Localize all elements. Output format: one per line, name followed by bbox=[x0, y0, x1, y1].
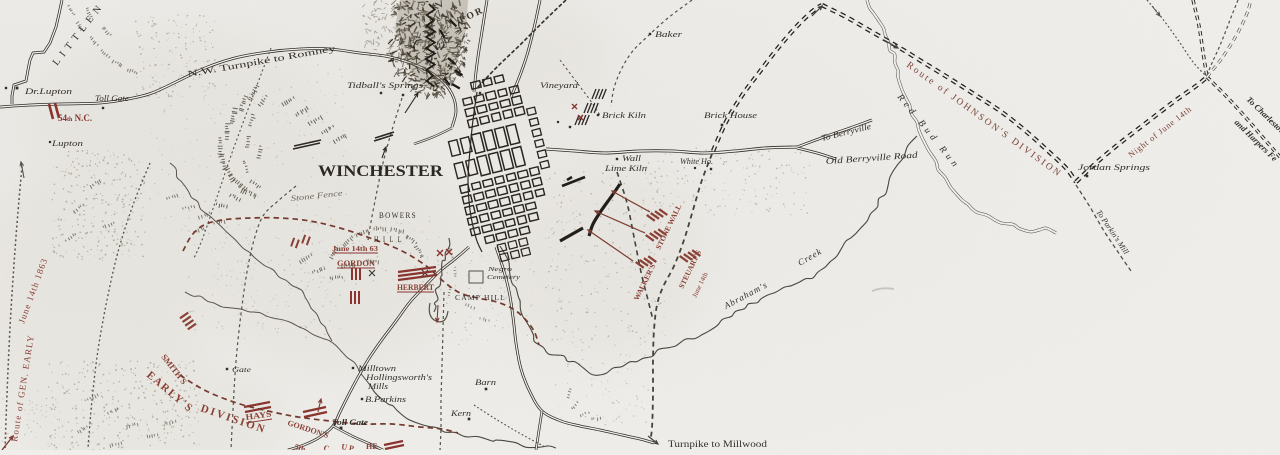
svg-text:54th N.C.: 54th N.C. bbox=[58, 113, 92, 123]
svg-text:Lime Kiln: Lime Kiln bbox=[604, 163, 647, 173]
svg-text:H I L L: H I L L bbox=[374, 235, 403, 244]
svg-text:Jordan Springs: Jordan Springs bbox=[1078, 162, 1151, 172]
svg-text:Baker: Baker bbox=[655, 29, 683, 39]
svg-text:Hollingsworth's: Hollingsworth's bbox=[365, 373, 432, 382]
svg-text:Negro: Negro bbox=[487, 266, 514, 273]
svg-text:Mills: Mills bbox=[367, 382, 388, 391]
svg-text:Lupton: Lupton bbox=[51, 138, 83, 148]
svg-text:HERBERT: HERBERT bbox=[397, 283, 435, 292]
svg-text:Milltown: Milltown bbox=[357, 364, 396, 373]
svg-text:Vineyard: Vineyard bbox=[540, 80, 579, 90]
svg-text:Barn: Barn bbox=[475, 378, 496, 387]
svg-text:Gate: Gate bbox=[232, 365, 252, 374]
svg-text:HE: HE bbox=[366, 442, 378, 450]
svg-text:White Ho.: White Ho. bbox=[680, 157, 713, 166]
svg-text:Kern: Kern bbox=[450, 409, 471, 418]
svg-text:Toll Gate: Toll Gate bbox=[95, 94, 130, 103]
svg-text:Brick House: Brick House bbox=[704, 110, 757, 120]
svg-text:Toll Gate: Toll Gate bbox=[332, 418, 369, 427]
svg-text:CAMP HILL: CAMP HILL bbox=[455, 293, 506, 302]
svg-text:WINCHESTER: WINCHESTER bbox=[318, 163, 444, 180]
svg-text:Turnpike to Millwood: Turnpike to Millwood bbox=[668, 439, 768, 449]
svg-text:Cemetery: Cemetery bbox=[487, 274, 520, 281]
svg-text:U P: U P bbox=[341, 442, 355, 450]
svg-text:Dr.Lupton: Dr.Lupton bbox=[24, 86, 72, 96]
svg-text:BOWERS: BOWERS bbox=[379, 211, 417, 220]
svg-text:Wall: Wall bbox=[622, 154, 642, 163]
svg-text:Brick Kiln: Brick Kiln bbox=[602, 110, 646, 120]
svg-text:Tidball's Springs: Tidball's Springs bbox=[347, 80, 424, 90]
svg-text:GORDON: GORDON bbox=[337, 259, 375, 268]
svg-text:B.Parkins: B.Parkins bbox=[365, 394, 407, 404]
svg-text:June 14th 63: June 14th 63 bbox=[332, 244, 378, 253]
